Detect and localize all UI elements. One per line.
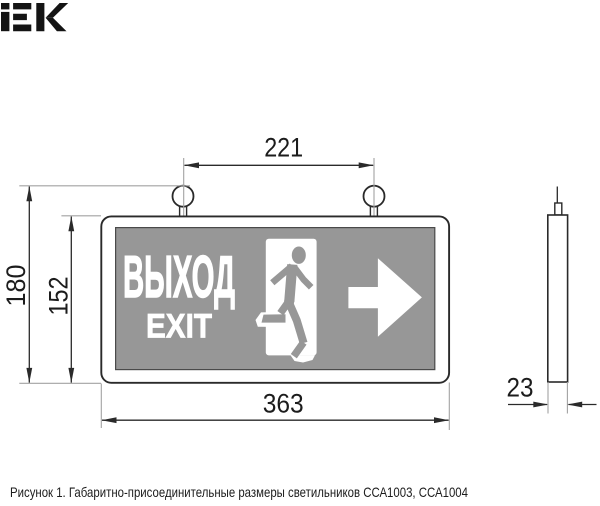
svg-text:23: 23: [507, 373, 534, 403]
svg-text:221: 221: [264, 133, 303, 163]
svg-text:363: 363: [263, 389, 304, 419]
svg-text:Рисунок 1. Габаритно-присоедин: Рисунок 1. Габаритно-присоединительные р…: [10, 485, 468, 500]
svg-text:152: 152: [44, 277, 74, 316]
svg-text:EXIT: EXIT: [146, 308, 212, 346]
svg-text:ВЫХОД: ВЫХОД: [123, 244, 235, 310]
svg-text:180: 180: [1, 265, 31, 307]
